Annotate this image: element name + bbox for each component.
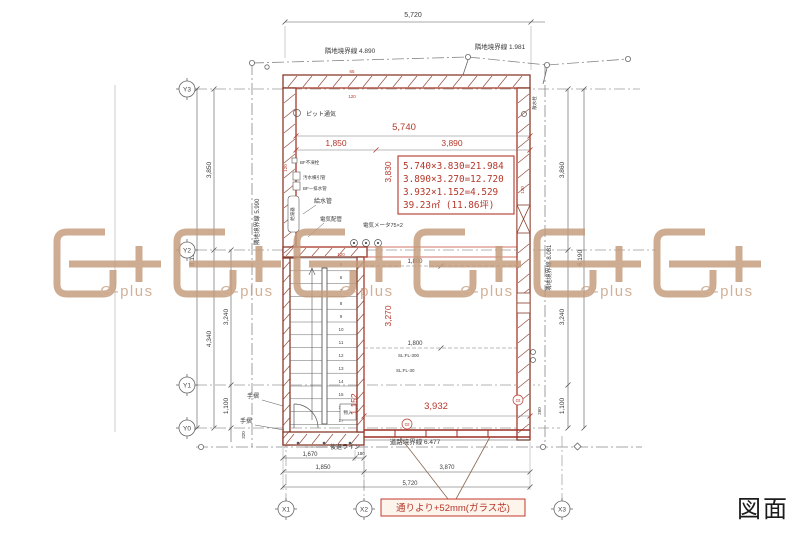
watermark-logo: G-plus	[657, 232, 761, 300]
red-dim-w-left: 1,850	[325, 138, 347, 148]
boundary-top-label: 隣地境界線 4.890	[325, 46, 376, 55]
handrail-leader-1	[262, 400, 283, 406]
red-dim-w-bottom: 3,932	[424, 401, 448, 412]
page-title: 図面	[737, 496, 789, 523]
glass-mark-text: Gt	[516, 398, 522, 403]
setback-line-label: 後退ライン	[330, 443, 360, 451]
sl-fl-30-label: SL:FL-30	[396, 368, 415, 373]
sl-fl-300-label: SL:FL-300	[398, 353, 420, 358]
red-dim-d-stair: 3,270	[383, 305, 393, 327]
area-calc-line4: 39.23㎡ (11.86坪)	[403, 199, 494, 211]
area-calc-box: 5.740×3.830=21.984 3.890×3.270=12.720 3.…	[398, 156, 514, 214]
stair-number: 9	[340, 314, 343, 319]
dim-right-upper: 3,860	[559, 161, 566, 178]
boundary-topright-label: 隣地境界線 1.981	[475, 42, 526, 51]
dim-bottom-seg2: 180	[357, 451, 365, 456]
watermark-text: G-plus	[340, 283, 393, 300]
boundary-left-label: 隣地境界線 5.990	[253, 198, 261, 245]
red-dim-w-total: 5,740	[392, 122, 416, 133]
wall-dim-120a: 120	[348, 94, 356, 99]
stair-number: 15	[338, 392, 344, 397]
red-dim-w-right: 3,890	[441, 138, 463, 148]
grid-bubble: Y1	[176, 374, 198, 396]
wall-dim-120c: 120	[520, 186, 525, 194]
watermark-logo: G-plus	[297, 232, 401, 300]
dim-right-mid: 3,240	[559, 308, 566, 325]
grid-bubble: X1	[275, 498, 297, 520]
bf-valve-label: BF不凍栓	[300, 159, 320, 166]
dim-left-upper: 3,850	[206, 161, 213, 178]
glass-front-line	[364, 430, 530, 437]
dim-top-overall: 5,720	[404, 12, 422, 19]
red-dim-d-entry: 1,152	[349, 393, 359, 415]
grid-bubble-label: Y3	[183, 86, 191, 93]
stair-number: 11	[339, 340, 344, 345]
stair-number: 8	[340, 301, 343, 306]
grid-bubble: Y3	[176, 78, 198, 100]
sprinkler-symbol-2	[531, 350, 536, 363]
area-calc-line1: 5.740×3.830=21.984	[403, 161, 504, 172]
dim-bottom-overall: 5,720	[402, 481, 418, 487]
watermark-text: G-plus	[100, 283, 153, 300]
dim-left-step: 320	[241, 431, 246, 439]
stair-number: 6	[340, 275, 343, 280]
floor-plan-drawing: 隣地境界線 4.890 隣地境界線 1.981 隣地境界線 5.990 隣地境界…	[0, 0, 800, 534]
boundary-bottom-label: 道路境界線 6.477	[390, 437, 441, 446]
area-calc-line2: 3.890×3.270=12.720	[403, 174, 504, 185]
floor-plan-page: 隣地境界線 4.890 隣地境界線 1.981 隣地境界線 5.990 隣地境界…	[0, 0, 800, 534]
electric-conduit-label: 電気配管	[320, 215, 343, 223]
note-box: 通りより+52mm(ガラス芯)	[381, 499, 525, 516]
pit-vent-label: ピット通気	[306, 110, 336, 118]
room-dim-2: 1,800	[407, 341, 423, 347]
bf-drain-label: BFー排水管	[303, 185, 327, 192]
grid-bubble: X2	[353, 498, 375, 520]
dim-right-low: 1,100	[559, 397, 566, 414]
glass-mark-2: Gt	[513, 395, 523, 405]
red-dim-d-upper: 3,830	[383, 161, 393, 183]
stair-number: 12	[338, 353, 344, 358]
handrail-leader-2	[255, 425, 284, 430]
note-text: 通りより+52mm(ガラス芯)	[396, 502, 510, 514]
wall-dim-120d: 120	[337, 252, 345, 257]
wall-dim-65: 65	[349, 69, 355, 74]
grid-bubble-label: X2	[360, 506, 368, 513]
handrail-label-2: 手摺	[240, 417, 252, 425]
dim-left-lower: 4,340	[206, 330, 213, 347]
water-supply-leader	[303, 205, 316, 214]
grid-bubble-label: Y2	[183, 247, 191, 254]
dim-right-small: 260	[537, 407, 542, 415]
dim-bottom-seg1: 1,670	[302, 452, 318, 458]
handrail-label-1: 手摺	[247, 392, 259, 400]
stair-number: 14	[338, 379, 344, 384]
sprinkler-label: 散水栓	[531, 96, 538, 110]
sewage-pipe-label: 汚水横引管	[303, 174, 326, 181]
watermark-text: G-plus	[580, 283, 633, 300]
grid-bubble-label: Y0	[183, 425, 191, 432]
grid-bubble-label: X1	[282, 506, 290, 513]
glass-mark-1: Gt	[402, 419, 412, 429]
water-heater-label: 給湯器	[289, 207, 296, 221]
glass-mark-text: Gt	[405, 422, 411, 427]
dim-bottom-seg4: 3,870	[439, 465, 455, 471]
utility-symbols	[351, 240, 382, 247]
grid-bubble-label: X3	[558, 506, 566, 513]
watermark-logo: G-plus	[177, 232, 281, 300]
grid-bubble-label: Y1	[183, 382, 191, 389]
dim-left-mid: 3,240	[223, 308, 230, 325]
water-supply-label: 給水管	[314, 197, 332, 205]
grid-bubble: X3	[551, 498, 573, 520]
grid-bubble: Y0	[176, 417, 198, 439]
watermark-text: G-plus	[220, 283, 273, 300]
area-calc-line3: 3.932×1.152=4.529	[403, 187, 498, 198]
stair-number: 13	[338, 366, 344, 371]
stair-number: 10	[338, 327, 344, 332]
watermark-logo: G-plus	[417, 232, 521, 300]
boundary-right-label: 隣地境界線 8.081	[545, 244, 553, 291]
watermark-text: G-plus	[700, 283, 753, 300]
dim-left-low: 1,100	[223, 397, 230, 414]
wall-dim-120b: 120	[283, 164, 288, 172]
watermark-logo: G-plus	[57, 232, 161, 300]
electric-meter-label: 電気メータ75×2	[363, 221, 403, 229]
dim-bottom-seg3: 1,850	[315, 465, 331, 471]
watermark-text: G-plus	[460, 283, 513, 300]
glass-mullions	[364, 430, 530, 437]
